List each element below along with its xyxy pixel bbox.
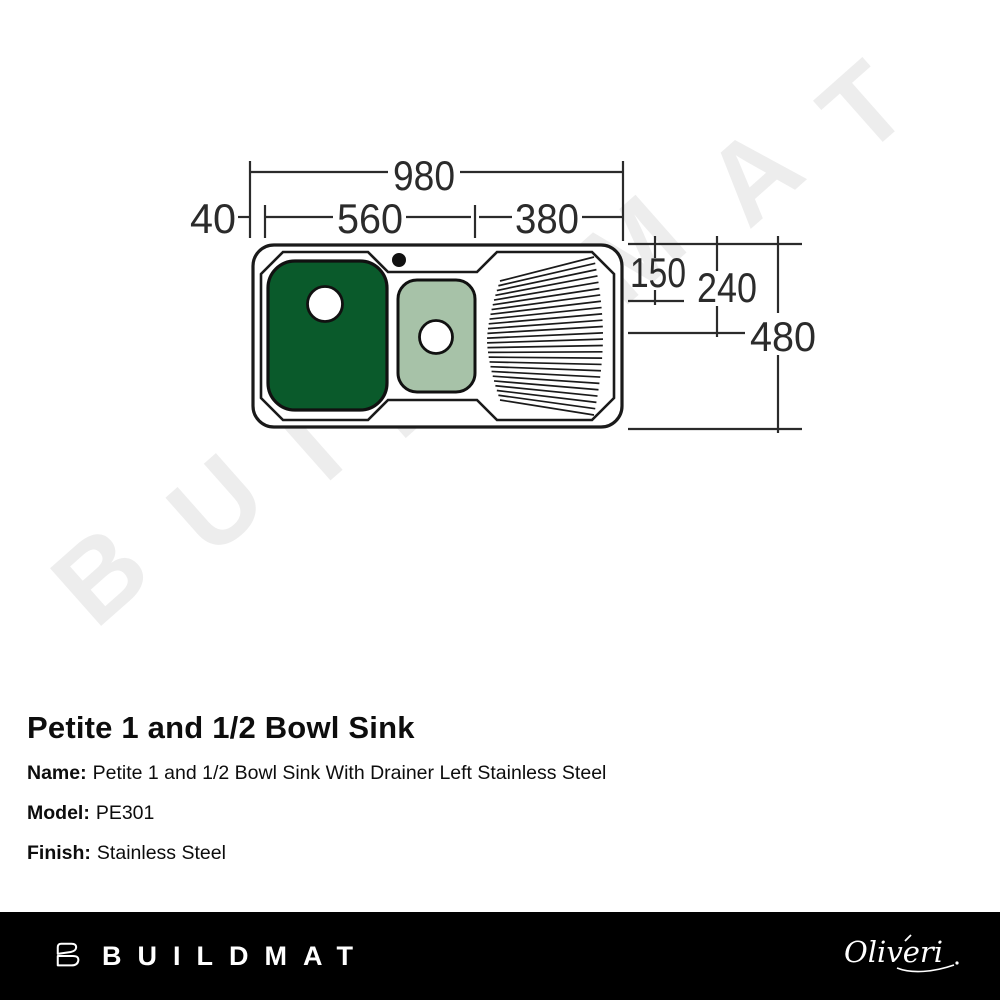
dim-label-left-offset: 40 <box>190 195 236 242</box>
buildmat-wordmark: BUILDMAT <box>102 941 369 972</box>
spec-label-finish: Finish: <box>27 842 91 864</box>
spec-value-model: PE301 <box>96 802 155 824</box>
dim-label-drainer-width: 380 <box>515 195 579 242</box>
product-spec-page: BUILDMAT 980 40 560 380 <box>0 0 1000 1000</box>
dim-label-150: 150 <box>630 249 686 296</box>
page-title: Petite 1 and 1/2 Bowl Sink <box>27 710 415 746</box>
spec-row-model: Model:PE301 <box>27 802 154 825</box>
spec-row-finish: Finish:Stainless Steel <box>27 842 226 865</box>
spec-row-name: Name:Petite 1 and 1/2 Bowl Sink With Dra… <box>27 762 606 785</box>
footer-bar: BUILDMAT Oliveri <box>0 912 1000 1000</box>
buildmat-b-icon <box>52 939 88 973</box>
oliveri-logo: Oliveri <box>842 932 962 980</box>
sink-plan <box>253 245 622 427</box>
oliveri-signature-text: Oliveri <box>844 935 943 969</box>
large-bowl-drain-hole <box>308 287 343 322</box>
oliveri-signature-dot <box>955 961 958 964</box>
dim-label-480: 480 <box>750 313 816 360</box>
sink-dimension-diagram: 980 40 560 380 150 <box>0 0 1000 480</box>
spec-value-name: Petite 1 and 1/2 Bowl Sink With Drainer … <box>93 762 607 784</box>
dim-label-bowl-width: 560 <box>337 195 403 242</box>
tap-hole <box>392 253 406 267</box>
spec-label-name: Name: <box>27 762 87 784</box>
large-bowl <box>268 261 387 410</box>
small-bowl-drain-hole <box>420 321 453 354</box>
dim-depths: 150 240 480 <box>628 236 816 433</box>
buildmat-brand: BUILDMAT <box>52 939 369 973</box>
spec-label-model: Model: <box>27 802 90 824</box>
spec-value-finish: Stainless Steel <box>97 842 226 864</box>
dim-label-240: 240 <box>697 264 757 311</box>
dim-sections-row: 40 560 380 <box>190 195 623 242</box>
dim-label-overall-width: 980 <box>393 152 455 199</box>
